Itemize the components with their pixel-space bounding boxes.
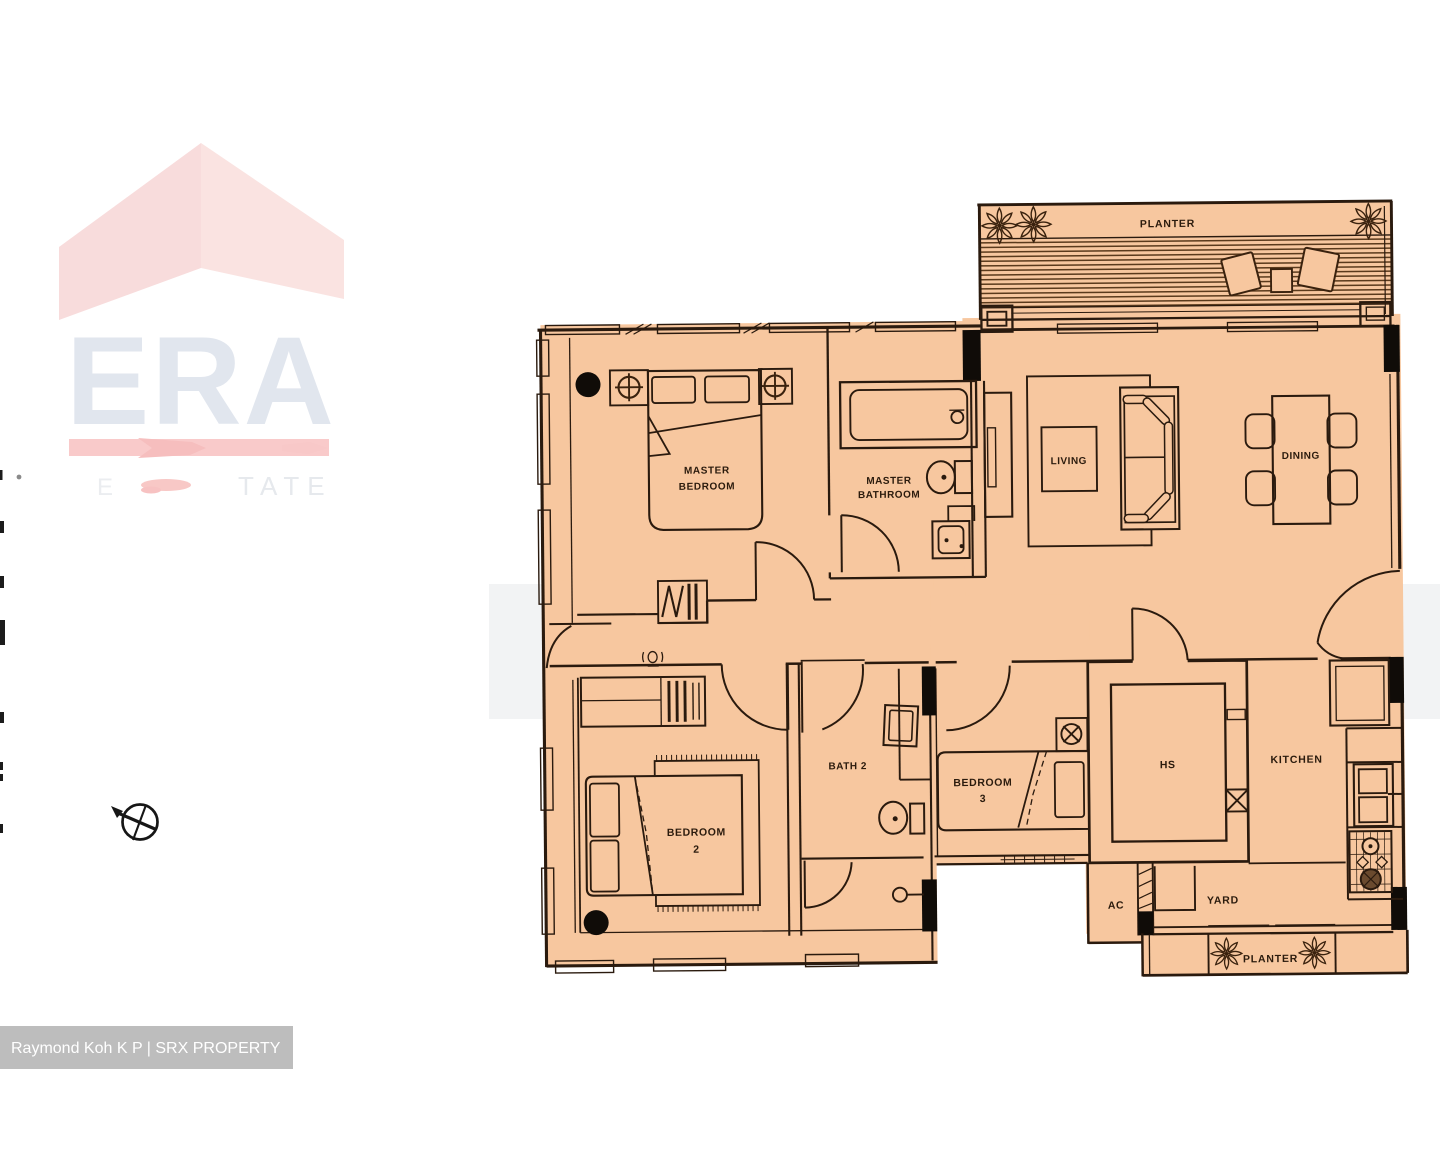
svg-text:KITCHEN: KITCHEN xyxy=(1270,754,1322,767)
svg-text:AC: AC xyxy=(1108,900,1124,912)
svg-text:TATE: TATE xyxy=(238,471,333,501)
svg-text:HS: HS xyxy=(1160,759,1176,771)
svg-text:YARD: YARD xyxy=(1207,894,1239,906)
svg-text:BATH 2: BATH 2 xyxy=(828,761,866,772)
svg-text:3: 3 xyxy=(980,793,987,805)
svg-text:Raymond Koh K P | SRX PROPERTY: Raymond Koh K P | SRX PROPERTY xyxy=(11,1040,281,1057)
svg-text:PLANTER: PLANTER xyxy=(1243,953,1298,966)
svg-text:BEDROOM: BEDROOM xyxy=(667,826,726,839)
svg-text:PLANTER: PLANTER xyxy=(1140,218,1195,231)
svg-text:DINING: DINING xyxy=(1282,451,1320,462)
svg-text:ERA: ERA xyxy=(66,312,336,451)
svg-text:2: 2 xyxy=(693,844,700,856)
svg-text:E: E xyxy=(97,474,113,501)
svg-text:LIVING: LIVING xyxy=(1051,456,1087,467)
svg-text:MASTER: MASTER xyxy=(866,476,912,487)
svg-text:BATHROOM: BATHROOM xyxy=(858,490,920,502)
svg-text:BEDROOM: BEDROOM xyxy=(679,481,736,493)
svg-text:MASTER: MASTER xyxy=(684,465,730,476)
svg-text:BEDROOM: BEDROOM xyxy=(953,777,1012,790)
